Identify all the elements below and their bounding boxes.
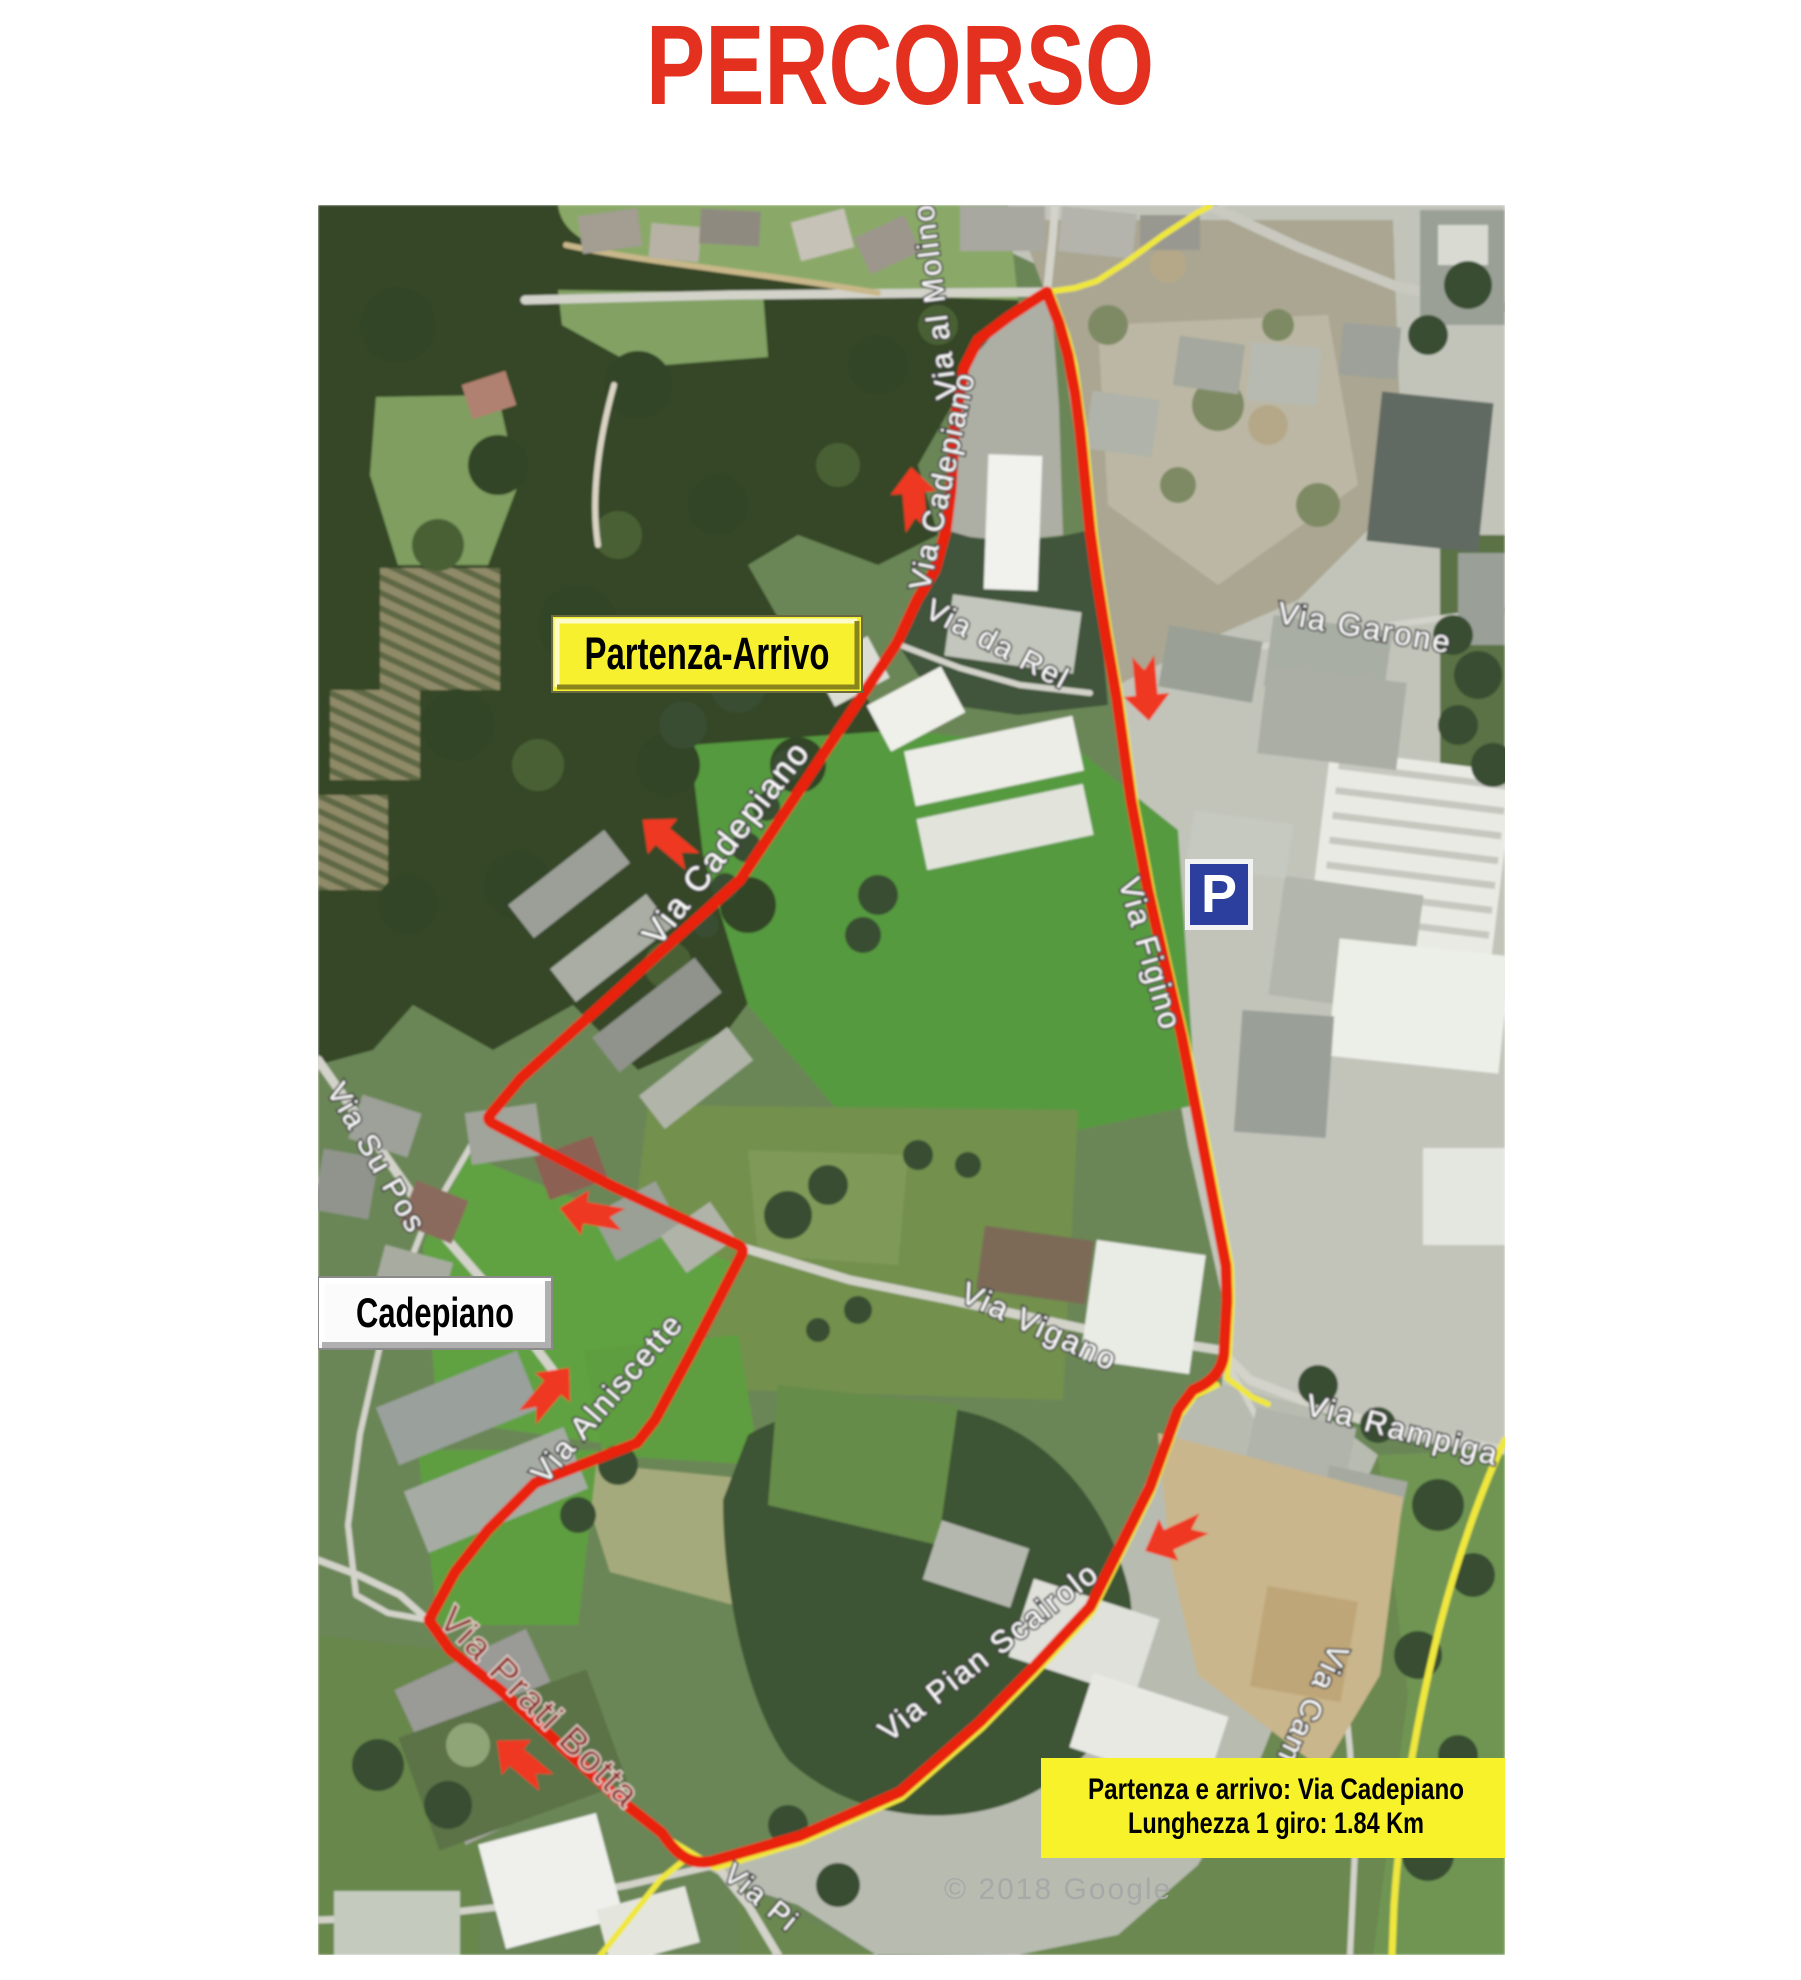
svg-text:P: P bbox=[1201, 864, 1237, 924]
svg-text:PERCORSO: PERCORSO bbox=[646, 2, 1154, 128]
svg-text:Lunghezza 1 giro: 1.84 Km: Lunghezza 1 giro: 1.84 Km bbox=[1128, 1807, 1424, 1840]
svg-text:Partenza e arrivo: Via Cadepia: Partenza e arrivo: Via Cadepiano bbox=[1088, 1773, 1464, 1806]
svg-text:Partenza-Arrivo: Partenza-Arrivo bbox=[585, 628, 830, 679]
svg-text:Cadepiano: Cadepiano bbox=[356, 1289, 514, 1336]
svg-text:© 2018 Google: © 2018 Google bbox=[944, 1873, 1172, 1906]
